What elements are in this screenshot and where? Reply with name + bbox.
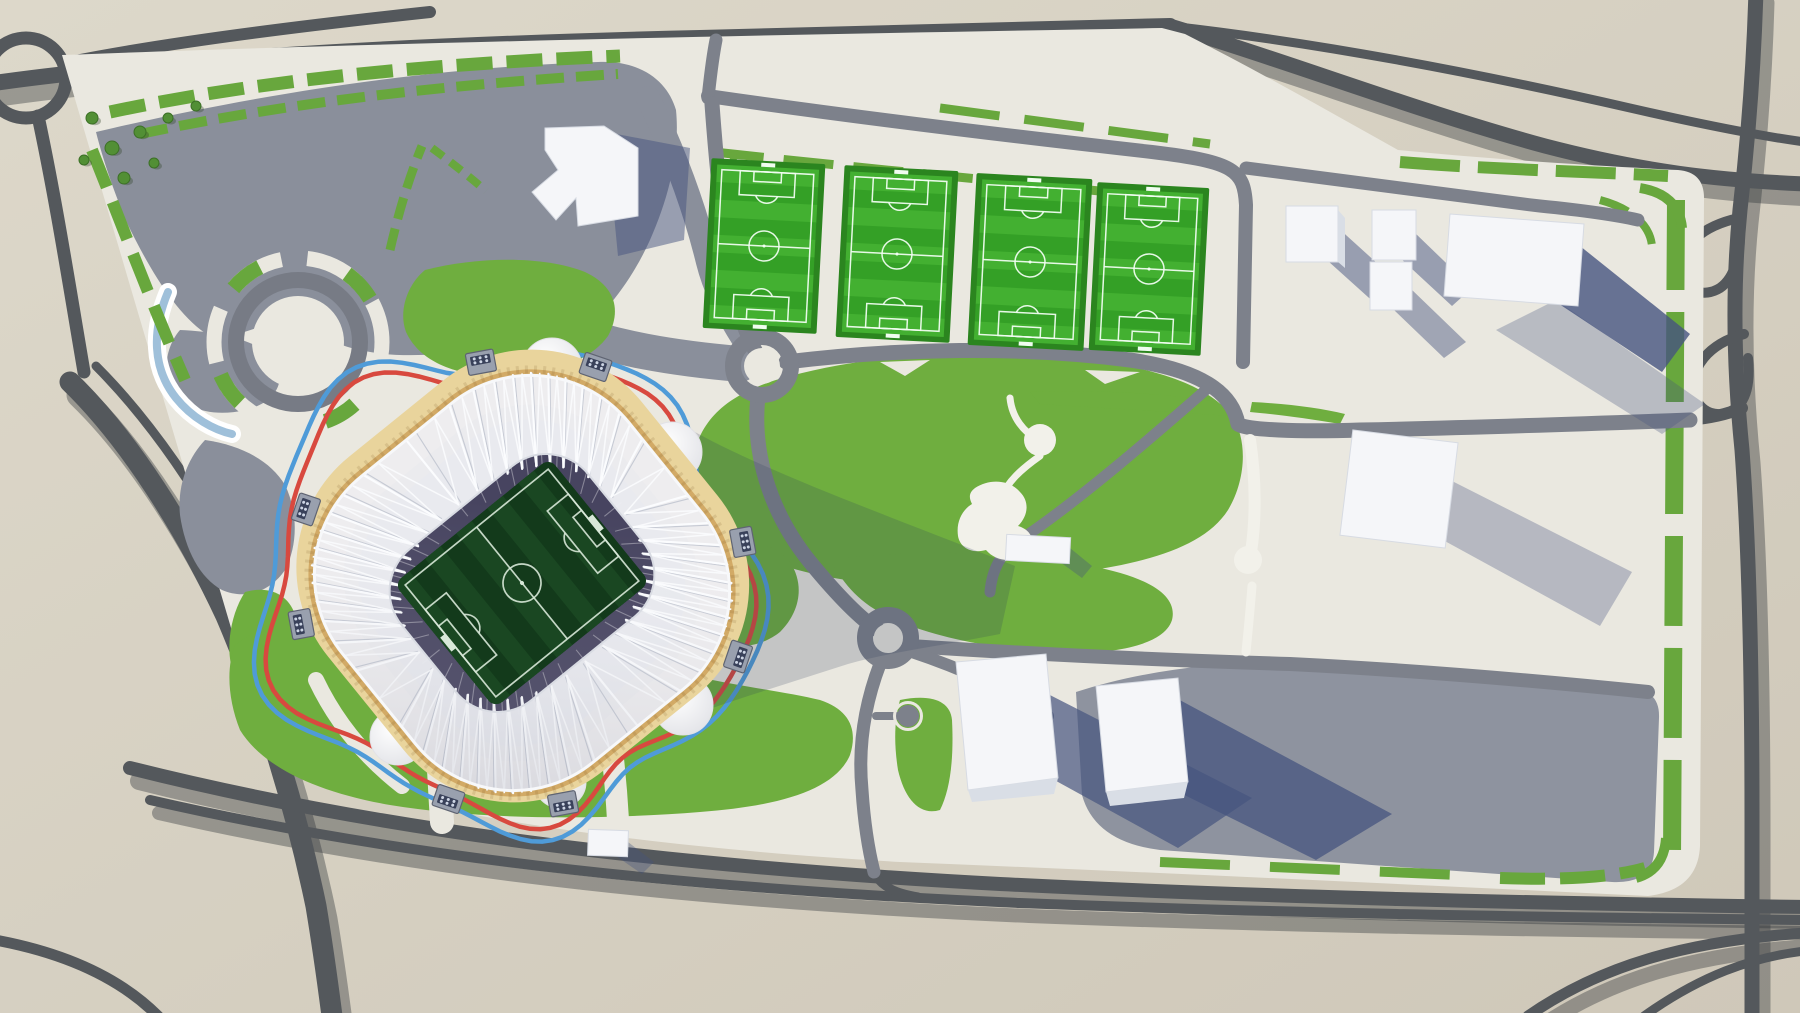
training-pitch-4 [1089, 182, 1210, 356]
footpath-east-1 [1250, 440, 1255, 552]
training-pitch-2 [836, 165, 959, 343]
training-pitch-1 [703, 158, 826, 334]
depot-building-b [1096, 678, 1188, 792]
depot-building-a [956, 654, 1058, 790]
stadium-precinct-aerial-view [0, 0, 1800, 1013]
plaza-center-disc [252, 296, 344, 388]
entrance-gate-3 [288, 608, 315, 640]
training-pitch-3 [968, 173, 1093, 351]
cube-building-side [1338, 210, 1345, 268]
entrance-gate-1 [547, 790, 579, 817]
cube-building [1286, 206, 1338, 262]
park-pavilion [1005, 534, 1070, 563]
slab-building [1444, 214, 1584, 306]
twin-building-b [1370, 262, 1412, 310]
footpath-disc-1 [1024, 424, 1056, 456]
footpath-east-2 [1246, 586, 1252, 652]
road-north-entrance [708, 40, 716, 98]
site-plan-render [0, 0, 1800, 1013]
footpath-disc-2 [1234, 546, 1262, 574]
twin-building-a [1372, 210, 1416, 260]
hall-building [1340, 430, 1458, 548]
roundabout-3 [895, 703, 922, 730]
south-kiosk [588, 829, 629, 856]
entrance-gate-7 [729, 526, 756, 558]
entrance-gate-5 [465, 349, 497, 376]
